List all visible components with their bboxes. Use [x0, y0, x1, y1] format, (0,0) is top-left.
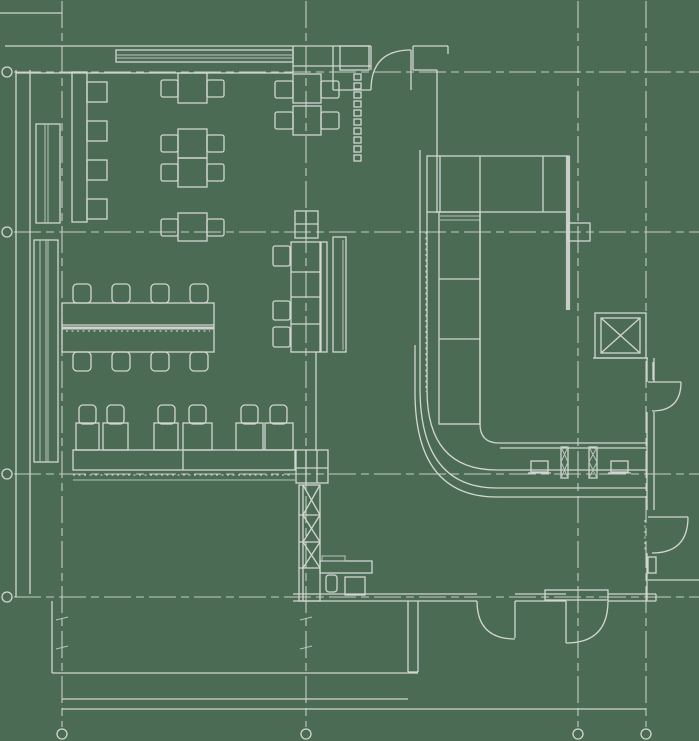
- door-swing-arc: [652, 517, 688, 553]
- chair: [273, 327, 290, 347]
- dining-table-four-top: [275, 74, 339, 135]
- counter-rail: [420, 150, 647, 488]
- floor-plan-canvas: [0, 0, 699, 741]
- stool-back: [241, 405, 258, 424]
- axis-marker-circle: [2, 227, 12, 237]
- door-swing-arc: [652, 382, 681, 411]
- chair: [112, 352, 130, 371]
- axis-marker-circle: [573, 729, 583, 739]
- chair: [207, 135, 224, 152]
- dining-tables-two-top: [161, 73, 224, 241]
- divider-post: [354, 83, 361, 89]
- banquette-outline: [427, 156, 569, 212]
- chair: [151, 352, 169, 371]
- kitchen-block: [320, 556, 372, 595]
- walls: [0, 13, 699, 709]
- table: [293, 74, 321, 103]
- stool-back: [270, 405, 287, 424]
- stool-back: [107, 405, 124, 424]
- stool-back: [158, 405, 175, 424]
- stool: [183, 423, 212, 450]
- stair-shaft: [299, 485, 320, 601]
- south-doors: [477, 590, 608, 643]
- equipment: [322, 556, 345, 561]
- divider-post: [354, 101, 361, 107]
- axis-marker-circle: [641, 729, 651, 739]
- vestibule-divider: [354, 74, 361, 161]
- divider-post: [354, 146, 361, 152]
- stool: [76, 423, 99, 450]
- divider-post: [354, 110, 361, 116]
- divider-post: [354, 128, 361, 134]
- back-bar: [439, 212, 480, 424]
- divider-post: [354, 74, 361, 80]
- chair: [161, 135, 178, 152]
- cabinet-outline: [116, 50, 293, 62]
- stool: [103, 423, 128, 450]
- chair: [73, 284, 91, 303]
- chair: [161, 219, 178, 236]
- divider-post: [354, 119, 361, 125]
- chair: [190, 352, 208, 371]
- elevator: [593, 313, 648, 358]
- axis-marker-circle: [57, 729, 67, 739]
- back-shelf: [321, 242, 327, 352]
- table: [178, 73, 207, 103]
- work-counter: [320, 561, 372, 573]
- table: [293, 106, 321, 135]
- floor-plan-drawing: [0, 0, 699, 741]
- bar-counter: [415, 150, 647, 497]
- door-swing-arc: [371, 50, 411, 90]
- banquette-block: [427, 156, 590, 310]
- divider-post: [354, 155, 361, 161]
- axis-marker-circle: [2, 592, 12, 602]
- counter: [73, 450, 295, 470]
- chair: [207, 80, 224, 97]
- door-swing-arc: [566, 601, 608, 643]
- bench: [72, 72, 87, 222]
- display-stand: [589, 447, 597, 478]
- chair: [161, 164, 178, 181]
- bench-seat: [87, 121, 107, 141]
- axis-marker-circle: [2, 469, 12, 479]
- center-service-counter: [273, 211, 346, 483]
- back-shelf: [333, 237, 346, 352]
- stool: [265, 423, 293, 450]
- stool-back: [79, 405, 96, 424]
- table: [178, 129, 207, 158]
- window-bench-north: [72, 72, 107, 222]
- display-stand: [561, 447, 568, 478]
- stool: [236, 423, 263, 450]
- door-threshold: [545, 590, 608, 600]
- stool-back: [189, 405, 206, 424]
- wall-cabinet: [116, 50, 293, 62]
- axis-marker-circle: [301, 729, 311, 739]
- chair: [275, 112, 293, 129]
- chair: [151, 284, 169, 303]
- chair: [273, 246, 290, 266]
- divider-post: [354, 92, 361, 98]
- bench-seat: [87, 199, 107, 219]
- stool-bench-row: [73, 405, 295, 480]
- counter-inner-edge: [480, 212, 647, 443]
- chair: [321, 112, 339, 129]
- chair: [73, 352, 91, 371]
- chair: [207, 164, 224, 181]
- window-bench-west: [34, 124, 60, 462]
- chair: [275, 81, 293, 98]
- equipment: [326, 575, 337, 592]
- table: [178, 213, 207, 241]
- axis-marker-circle: [2, 67, 12, 77]
- wall-column: [648, 557, 656, 573]
- entrance-door: [371, 50, 411, 90]
- bench-seat: [87, 82, 107, 102]
- grid-axes: [2, 1, 699, 739]
- door-swing-arc: [477, 601, 515, 639]
- chair: [207, 219, 224, 236]
- table: [178, 158, 207, 187]
- chair: [112, 284, 130, 303]
- chair: [273, 301, 290, 320]
- divider-post: [354, 137, 361, 143]
- east-doors: [645, 362, 688, 553]
- bench-seat: [87, 160, 107, 180]
- chair: [190, 284, 208, 303]
- stool: [154, 423, 178, 450]
- communal-table: [62, 284, 214, 371]
- counter-end: [296, 450, 328, 483]
- equipment: [345, 577, 365, 595]
- chair: [161, 80, 178, 97]
